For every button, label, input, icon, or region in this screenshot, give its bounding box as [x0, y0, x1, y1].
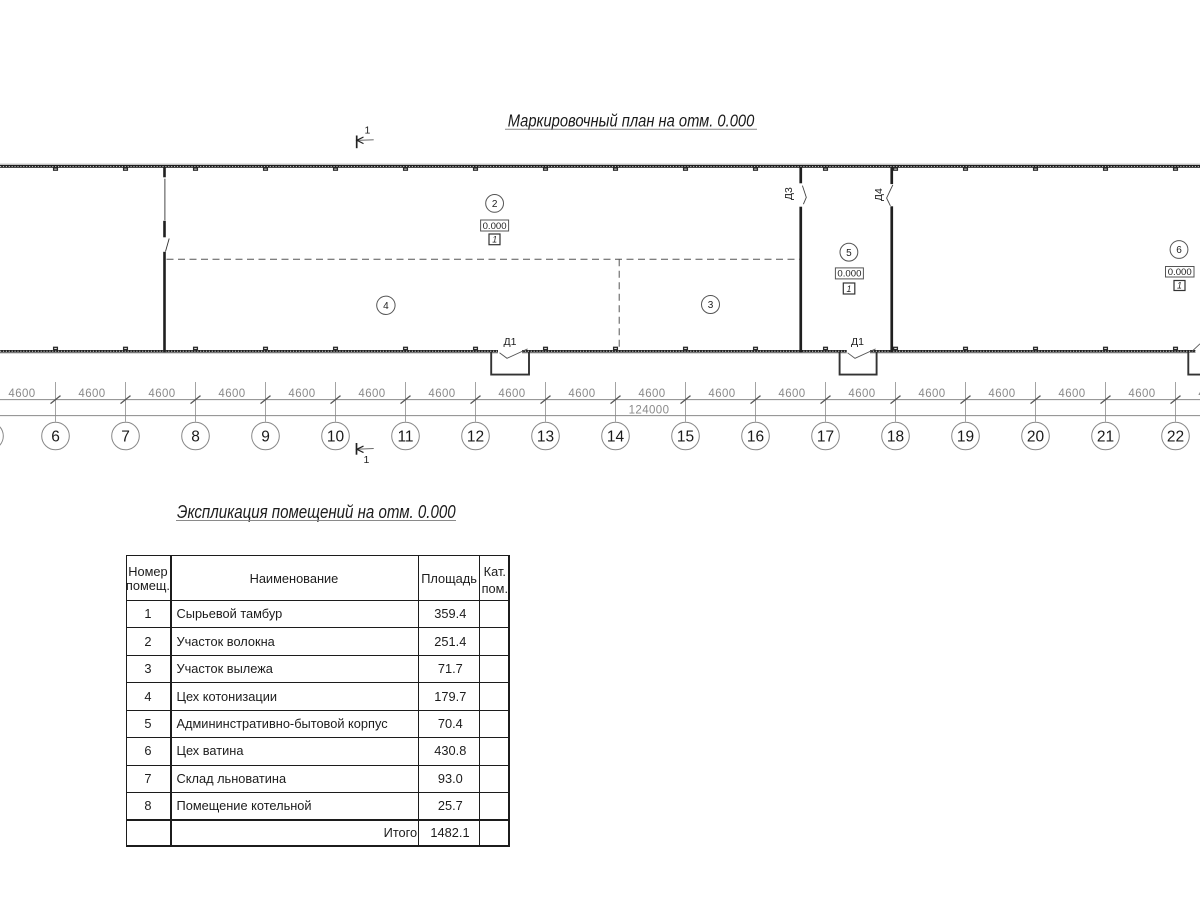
svg-text:22: 22 — [1167, 428, 1184, 445]
svg-text:20: 20 — [1027, 428, 1045, 445]
svg-text:6: 6 — [1176, 245, 1182, 256]
svg-text:17: 17 — [817, 428, 834, 445]
svg-text:3: 3 — [708, 300, 714, 311]
svg-text:1: 1 — [365, 124, 371, 136]
svg-text:0.000: 0.000 — [1168, 267, 1192, 278]
svg-text:1: 1 — [364, 454, 370, 466]
svg-text:4600: 4600 — [1128, 388, 1155, 400]
svg-text:Д3: Д3 — [783, 187, 795, 200]
svg-text:8: 8 — [191, 428, 200, 445]
svg-text:6: 6 — [51, 428, 60, 445]
svg-text:4600: 4600 — [848, 388, 875, 400]
svg-text:10: 10 — [327, 428, 345, 445]
svg-text:4600: 4600 — [1058, 388, 1085, 400]
svg-text:124000: 124000 — [629, 404, 670, 416]
svg-text:4600: 4600 — [708, 388, 735, 400]
svg-text:4600: 4600 — [428, 388, 455, 400]
svg-text:0.000: 0.000 — [483, 221, 507, 232]
svg-text:4600: 4600 — [358, 388, 385, 400]
svg-text:2: 2 — [492, 199, 498, 210]
svg-text:11: 11 — [397, 428, 413, 445]
svg-text:0.000: 0.000 — [837, 269, 861, 280]
svg-text:Маркировочный план на отм. 0.0: Маркировочный план на отм. 0.000 — [508, 111, 755, 131]
svg-text:4600: 4600 — [8, 388, 35, 400]
svg-text:4600: 4600 — [918, 388, 945, 400]
svg-text:9: 9 — [261, 428, 270, 445]
svg-text:13: 13 — [537, 428, 554, 445]
svg-text:18: 18 — [887, 428, 904, 445]
svg-text:15: 15 — [677, 428, 694, 445]
svg-text:4600: 4600 — [78, 388, 105, 400]
svg-text:1: 1 — [847, 284, 852, 294]
svg-text:4600: 4600 — [988, 388, 1015, 400]
svg-text:21: 21 — [1097, 428, 1114, 445]
svg-text:4600: 4600 — [498, 388, 525, 400]
svg-text:1: 1 — [1177, 281, 1182, 291]
svg-text:4: 4 — [383, 301, 389, 312]
svg-text:16: 16 — [747, 428, 764, 445]
svg-text:12: 12 — [467, 428, 484, 445]
svg-text:Д1: Д1 — [851, 336, 864, 348]
svg-text:4600: 4600 — [218, 388, 245, 400]
svg-text:14: 14 — [607, 428, 625, 445]
svg-text:19: 19 — [957, 428, 974, 445]
svg-text:5: 5 — [846, 248, 852, 259]
svg-text:4600: 4600 — [288, 388, 315, 400]
svg-text:4600: 4600 — [638, 388, 665, 400]
svg-text:4600: 4600 — [778, 388, 805, 400]
svg-text:Д1: Д1 — [504, 336, 517, 348]
svg-text:7: 7 — [121, 428, 130, 445]
svg-text:4600: 4600 — [148, 388, 175, 400]
svg-text:4600: 4600 — [568, 388, 595, 400]
svg-text:1: 1 — [492, 235, 497, 245]
svg-text:Д4: Д4 — [873, 188, 885, 201]
